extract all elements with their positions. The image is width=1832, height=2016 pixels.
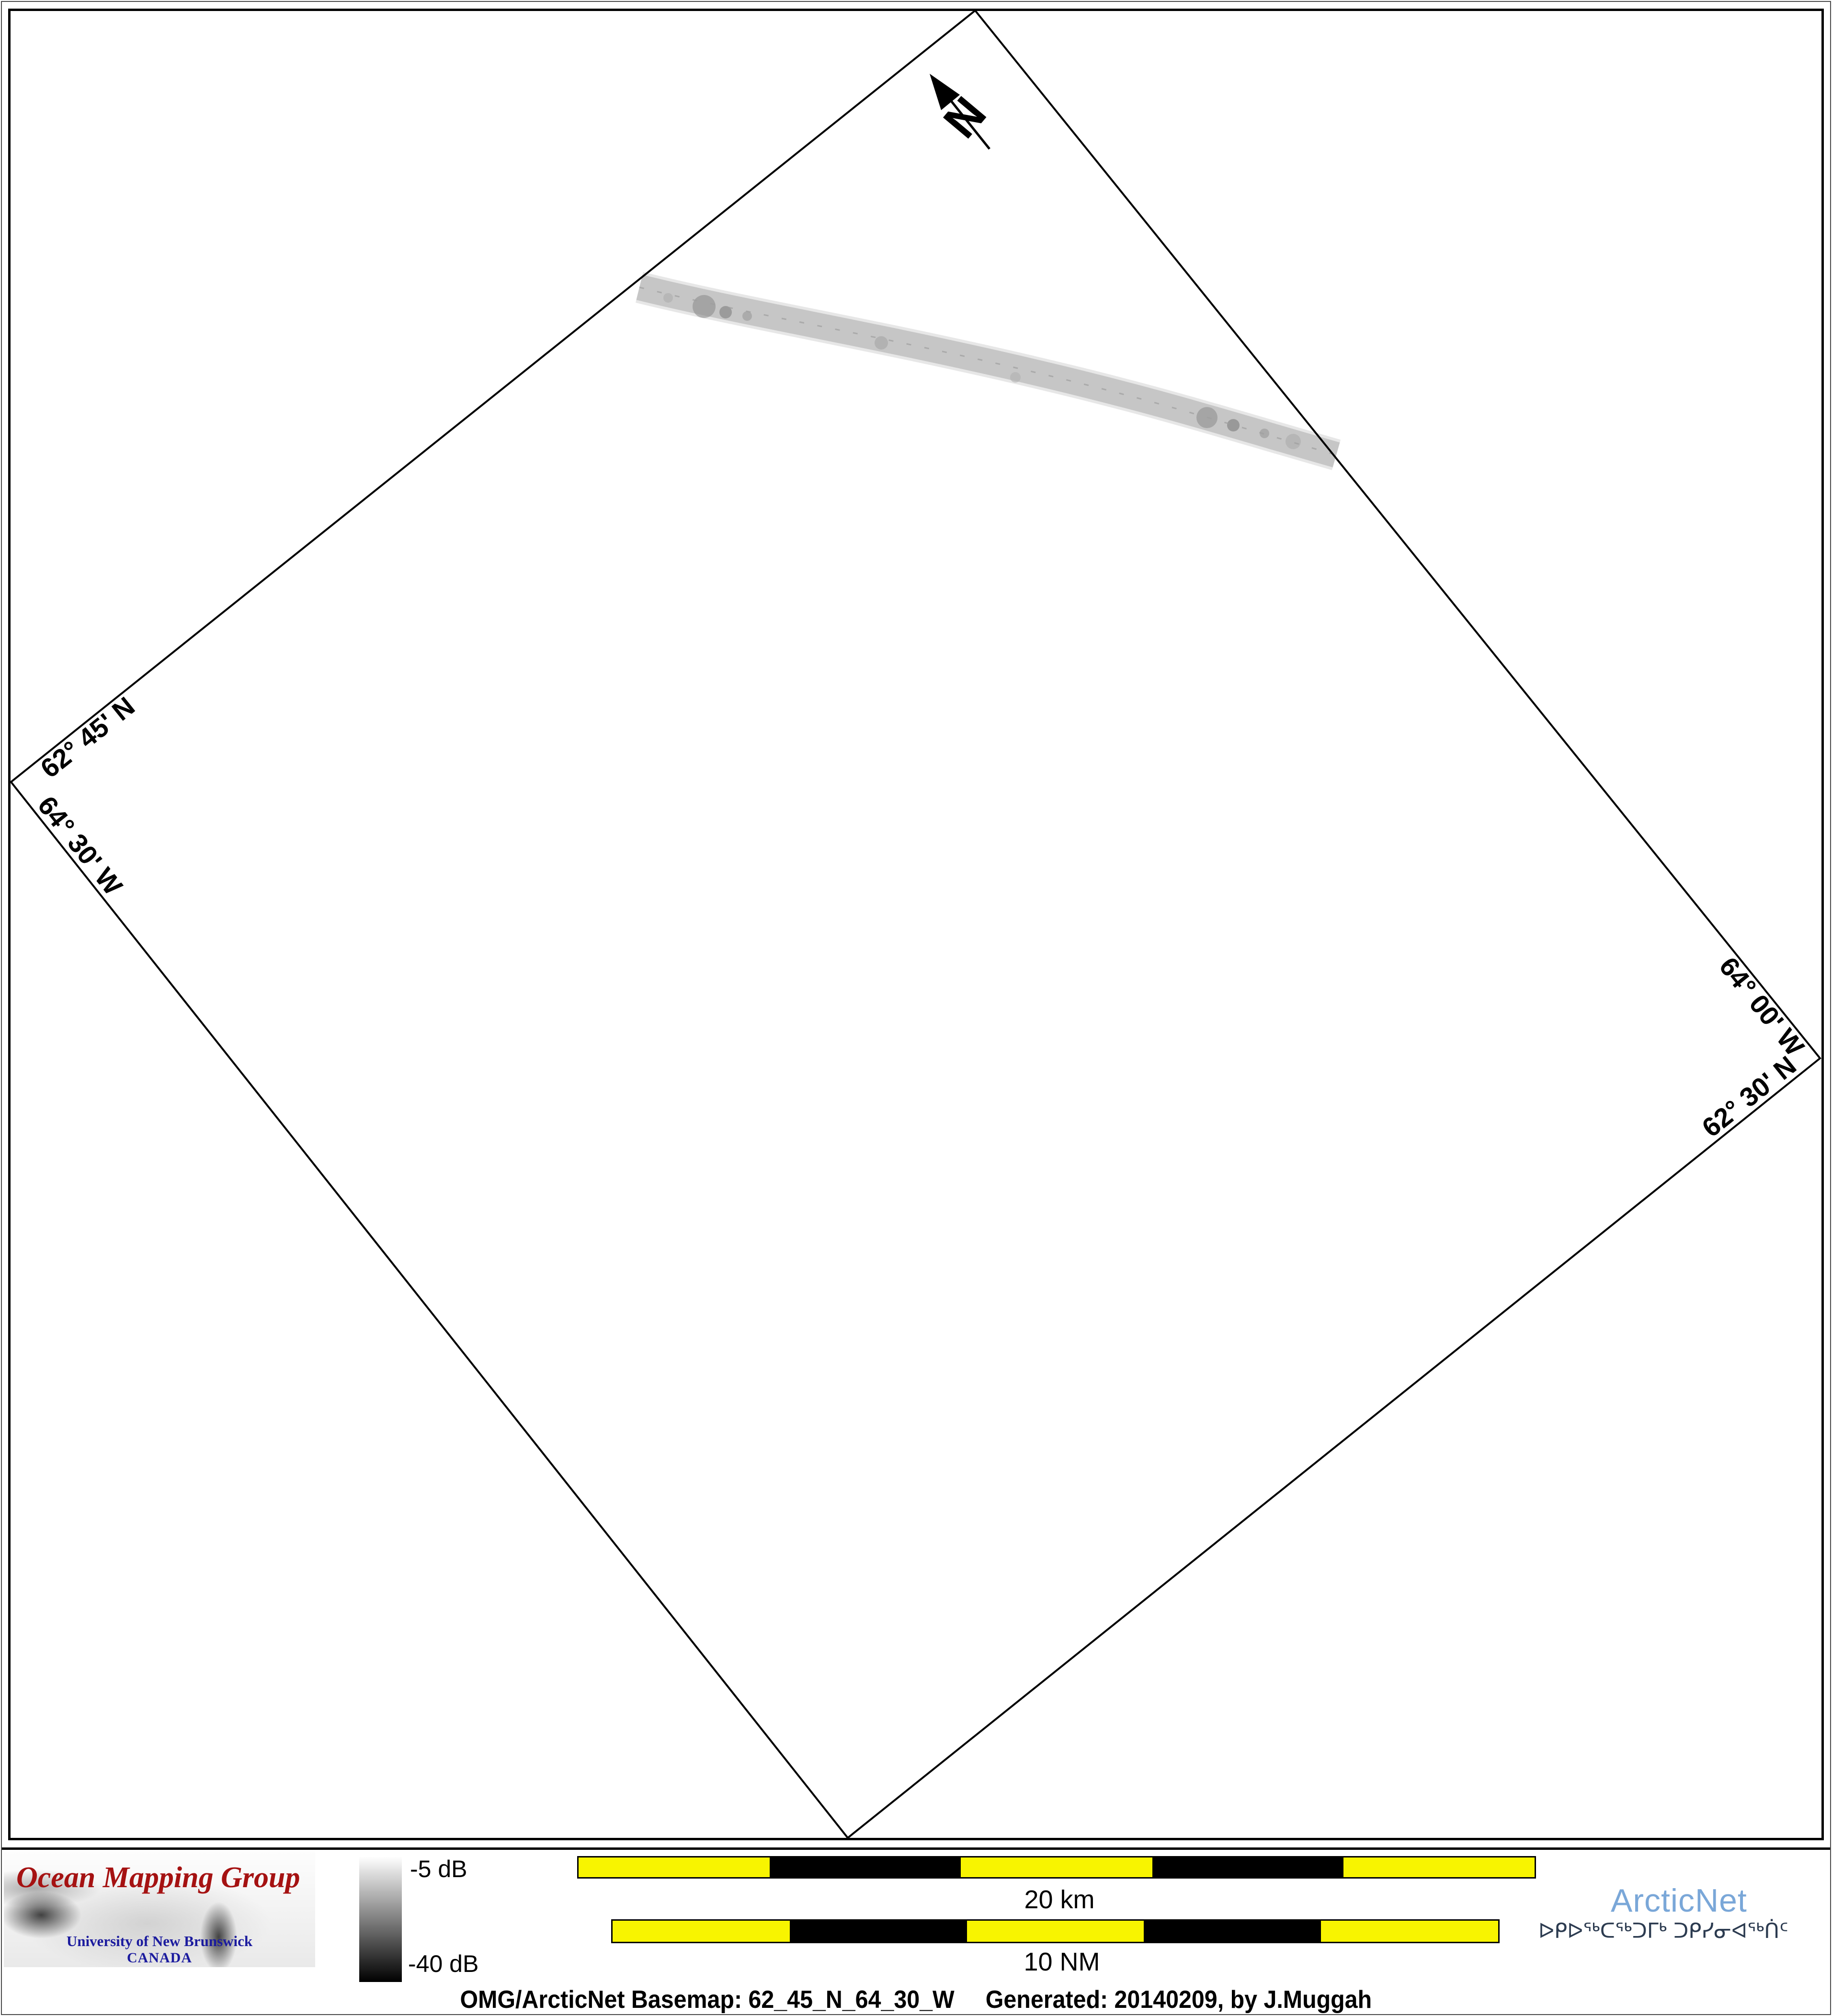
north-arrow: N	[930, 74, 997, 149]
omg-logo-title: Ocean Mapping Group	[16, 1861, 300, 1895]
edge-label-lon-lower-left: 64° 30' W	[32, 790, 128, 900]
map-canvas: N 62° 45' N 64° 30' W 64° 00' W 62° 30' …	[0, 0, 1832, 2016]
omg-logo: Ocean Mapping Group University of New Br…	[4, 1851, 315, 1967]
basemap-caption: OMG/ArcticNet Basemap: 62_45_N_64_30_WGe…	[64, 1985, 1768, 2014]
scalebar-segment-yellow	[961, 1857, 1152, 1877]
omg-logo-country: CANADA	[4, 1950, 315, 1966]
arcticnet-inuktitut-text: ᐅᑭᐅᖅᑕᖅᑐᒥᒃ ᑐᑭᓯᓂᐊᖅᑏᑦ	[1538, 1919, 1788, 1943]
scalebar-segment-black	[790, 1921, 967, 1942]
scalebar-km	[577, 1856, 1536, 1879]
basemap-caption-name: OMG/ArcticNet Basemap: 62_45_N_64_30_W	[460, 1986, 955, 2014]
survey-block-outline	[11, 11, 1820, 1838]
arcticnet-wordmark: ArcticNet	[1611, 1882, 1747, 1919]
scalebar-segment-yellow	[1343, 1857, 1535, 1877]
edge-label-lon-upper-right: 64° 00' W	[1713, 951, 1810, 1062]
scalebar-km-label: 20 km	[1024, 1885, 1094, 1914]
basemap-caption-generated: Generated: 20140209, by J.Muggah	[986, 1986, 1372, 2014]
colorbar-min-label: -40 dB	[408, 1950, 478, 1978]
scalebar-segment-black	[1144, 1921, 1321, 1942]
omg-logo-university: University of New Brunswick	[4, 1933, 315, 1950]
scalebar-segment-black	[770, 1857, 961, 1877]
scalebar-segment-black	[1152, 1857, 1343, 1877]
scalebar-segment-yellow	[967, 1921, 1144, 1942]
scalebar-segment-yellow	[613, 1921, 790, 1942]
edge-label-lat-upper-left: 62° 45' N	[35, 691, 140, 784]
scalebar-nm	[611, 1919, 1500, 1943]
edge-label-lat-lower-right: 62° 30' N	[1696, 1050, 1802, 1143]
scalebar-segment-yellow	[1321, 1921, 1498, 1942]
backscatter-colorbar	[359, 1857, 402, 1982]
colorbar-max-label: -5 dB	[410, 1855, 467, 1883]
scalebar-nm-label: 10 NM	[1024, 1947, 1100, 1977]
scalebar-segment-yellow	[579, 1857, 770, 1877]
sonar-swath	[639, 287, 1336, 455]
